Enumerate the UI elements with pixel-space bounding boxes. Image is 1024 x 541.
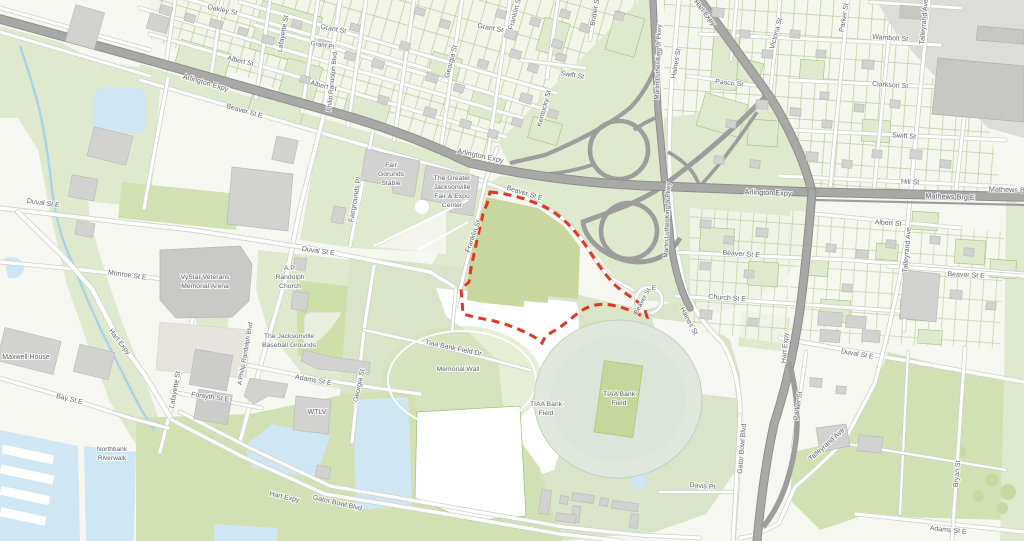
svg-text:Church: Church bbox=[279, 283, 301, 290]
svg-text:The Jacksonville: The Jacksonville bbox=[264, 333, 314, 340]
svg-text:WTLV: WTLV bbox=[308, 409, 327, 416]
svg-text:A.P.: A.P. bbox=[284, 265, 296, 272]
svg-text:The Greater: The Greater bbox=[434, 175, 471, 182]
svg-text:Field: Field bbox=[539, 410, 554, 417]
svg-text:Mathews Brg E: Mathews Brg E bbox=[925, 191, 975, 202]
svg-text:Fair & Expo: Fair & Expo bbox=[434, 193, 470, 200]
svg-text:Center: Center bbox=[442, 202, 463, 209]
svg-text:Stable: Stable bbox=[381, 180, 400, 187]
svg-text:VyStar Veterans: VyStar Veterans bbox=[181, 274, 230, 281]
svg-text:TIAA Bank: TIAA Bank bbox=[530, 401, 563, 408]
svg-text:TIAA Bank: TIAA Bank bbox=[603, 391, 636, 398]
svg-text:Memorial Arena: Memorial Arena bbox=[181, 283, 229, 290]
svg-text:Arlington Expy: Arlington Expy bbox=[744, 187, 792, 198]
svg-text:Riverwalk: Riverwalk bbox=[98, 455, 127, 462]
svg-text:Baseball Grounds: Baseball Grounds bbox=[262, 342, 317, 349]
svg-text:Fair: Fair bbox=[385, 162, 397, 169]
svg-text:Memorial Wall: Memorial Wall bbox=[437, 366, 480, 373]
svg-text:Mathews Br: Mathews Br bbox=[989, 184, 1024, 194]
svg-text:Hill St: Hill St bbox=[901, 178, 920, 186]
svg-text:Gorunds: Gorunds bbox=[378, 171, 405, 178]
svg-text:Maxwell House: Maxwell House bbox=[2, 354, 50, 361]
svg-text:Jacksonville: Jacksonville bbox=[434, 184, 471, 191]
svg-text:Northbank: Northbank bbox=[97, 446, 128, 453]
svg-text:Field: Field bbox=[612, 400, 627, 407]
svg-text:E: E bbox=[652, 285, 657, 292]
svg-text:Randolph: Randolph bbox=[275, 274, 304, 281]
